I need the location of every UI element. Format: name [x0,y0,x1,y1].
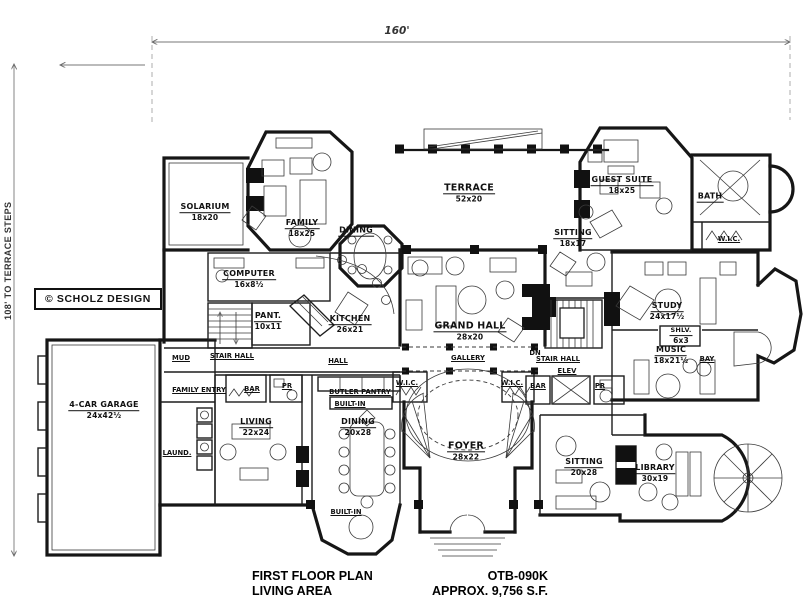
room-label-garage: 4-CAR GARAGE24x42½ [68,400,139,420]
dimension-height-label: 108' TO TERRACE STEPS [3,202,13,320]
label-gallery: GALLERY [451,354,485,362]
dimension-width-label: 160' [384,25,409,37]
room-label-bath: BATH [697,192,724,203]
room-label-kitchen: KITCHEN26x21 [329,314,372,334]
copyright-stamp: © SCHOLZ DESIGN [34,288,162,310]
room-label-sitting-upper: SITTING18x17 [553,228,592,248]
label-built-in-bay: BUILT-IN [330,508,361,516]
room-label-solarium: SOLARIUM18x20 [179,202,230,222]
label-stair-hall-right: STAIR HALL [536,355,580,363]
room-label-living: LIVING22x24 [239,417,273,437]
room-label-library: LIBRARY30x19 [634,463,675,483]
label-bar-living: BAR [244,385,260,393]
room-label-dining: DINING20x28 [340,417,376,437]
label-pr-foyer: PR [595,382,605,390]
label-dn: DN [529,349,540,357]
label-wic-foyer-right: W.I.C. [501,379,523,387]
room-label-pantry: PANT.10x11 [254,311,282,331]
room-label-study: STUDY24x17½ [650,301,685,321]
label-butler-pantry: BUTLER PANTRY [329,388,391,396]
label-pr-living: PR [282,382,292,390]
label-laundry: LAUND. [163,449,192,457]
label-stair-hall-left: STAIR HALL [210,352,254,360]
label-mud: MUD [172,354,190,362]
plan-caption: FIRST FLOOR PLAN OTB-090K LIVING AREA AP… [252,569,548,599]
foyer-details [396,369,590,556]
plan-title: FIRST FLOOR PLAN [252,569,373,584]
room-label-terrace: TERRACE52x20 [443,182,495,203]
room-label-computer: COMPUTER16x8½ [222,269,276,289]
room-label-music: MUSIC18x21½ [654,345,689,365]
room-label-shelves: SHLV.6x3 [669,327,692,345]
room-label-dining-nook: DINING [338,226,374,237]
living-area-label: LIVING AREA [252,584,332,599]
label-bay: BAY [700,355,715,363]
label-wic-foyer-left: W.I.C. [396,379,418,387]
room-label-guest-suite: GUEST SUITE18x25 [591,175,654,195]
label-bar-foyer: BAR [530,382,546,390]
label-built-in-dining: BUILT-IN [334,400,365,408]
label-wic-guest: W.I.C. [718,235,740,243]
room-label-family: FAMILY18x25 [285,218,320,238]
room-label-grand-hall: GRAND HALL28x20 [433,320,506,341]
floor-plan-page: 160' 108' TO TERRACE STEPS © SCHOLZ DESI… [0,0,803,615]
plan-number: OTB-090K [488,569,548,584]
label-hall: HALL [328,357,348,365]
label-elev: ELEV [558,367,577,375]
living-area-value: APPROX. 9,756 S.F. [432,584,548,599]
room-label-foyer: FOYER28x22 [447,440,485,461]
label-family-entry: FAMILY ENTRY [172,386,226,394]
room-label-sitting-lower: SITTING20x28 [564,457,603,477]
